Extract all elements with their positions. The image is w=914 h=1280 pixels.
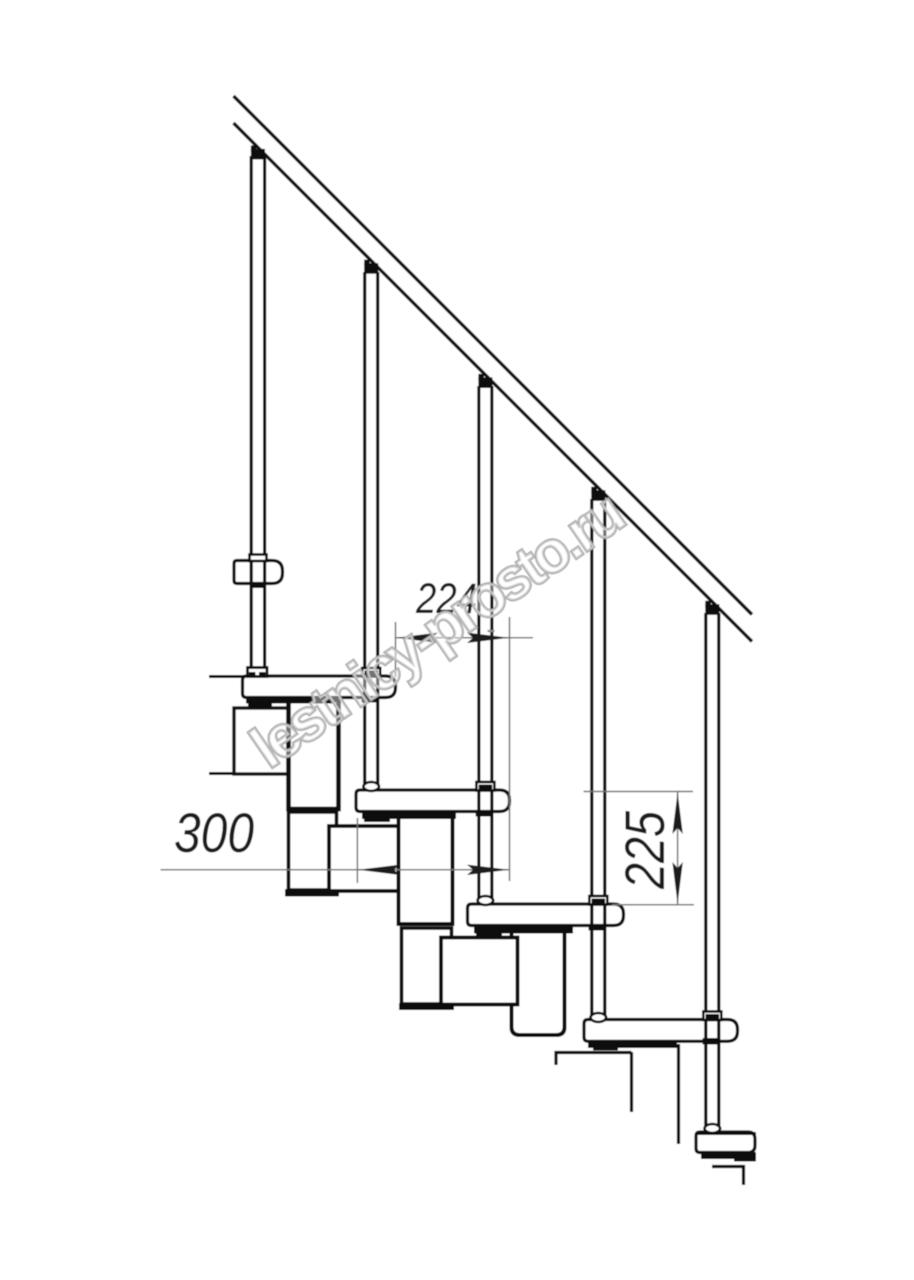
svg-text:225: 225 [613, 810, 676, 890]
svg-text:300: 300 [174, 801, 254, 864]
